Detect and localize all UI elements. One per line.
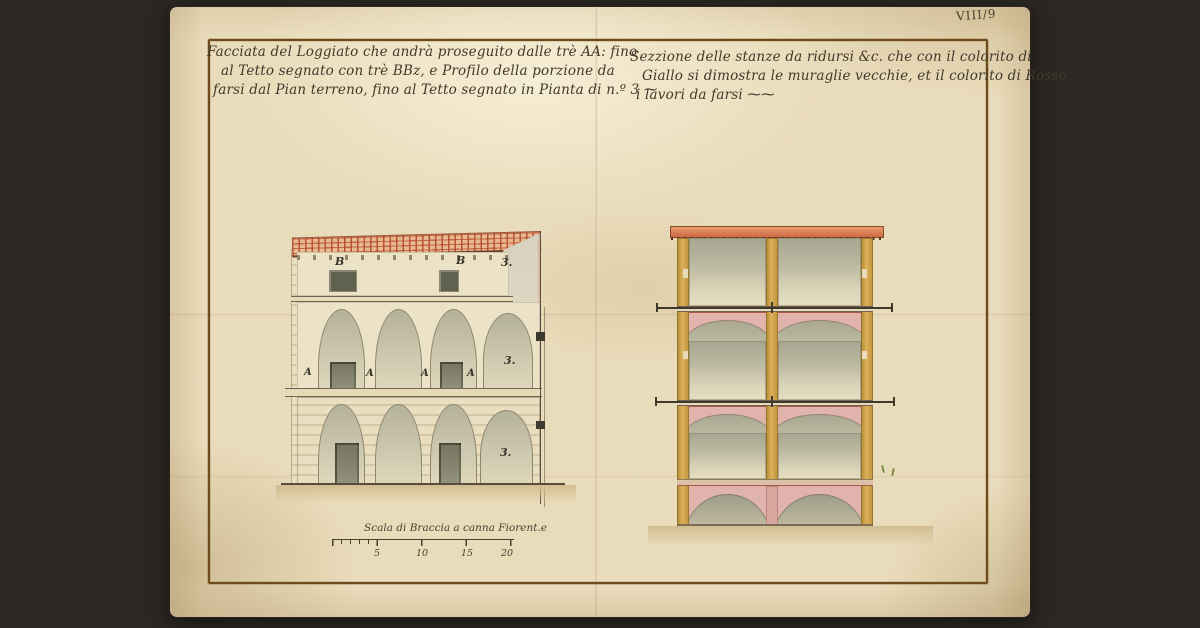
section-label-3: 3. — [500, 446, 511, 459]
tie-anchor — [536, 332, 545, 341]
left-title: Facciata del Loggiato che andrà prosegui… — [207, 43, 658, 100]
title-line: al Tetto segnato con trè BBz, e Profilo … — [207, 62, 658, 81]
scale-tick-label: 10 — [416, 548, 428, 559]
section-roof-slab — [670, 226, 884, 238]
title-line: farsi dal Pian terreno, fino al Tetto se… — [207, 81, 658, 100]
eave-corbels — [297, 255, 509, 260]
tie-rod — [655, 401, 895, 403]
arcade-label-a: A — [421, 368, 429, 379]
arcade-label-a: A — [467, 368, 475, 379]
cellar-vault — [689, 486, 766, 526]
room-cell — [689, 341, 766, 400]
room-cell — [778, 341, 861, 400]
section-label-3: 3. — [501, 256, 512, 269]
wall-step-notch — [683, 351, 688, 359]
ground-door-opening — [439, 443, 461, 484]
tie-rod-anchor — [893, 397, 895, 406]
floor-slab — [285, 388, 542, 397]
section-label-3: 3. — [504, 354, 515, 367]
photograph-background: VIII/9 Facciata del Loggiato che andrà p… — [0, 0, 1200, 628]
scale-tick-label: 15 — [461, 548, 473, 559]
parchment-sheet: VIII/9 Facciata del Loggiato che andrà p… — [170, 7, 1030, 617]
wall-step-notch — [862, 269, 867, 278]
cellar-center-pier — [766, 486, 778, 526]
vault-band — [689, 312, 766, 341]
title-line: Giallo si dimostra le muraglie vecchie, … — [630, 67, 1067, 86]
right-title: Sezzione delle stanze da ridursi &c. che… — [630, 48, 1067, 105]
floor-slab-pink — [677, 479, 873, 486]
arcade-label-a: A — [304, 367, 312, 378]
ground-door-opening — [335, 443, 359, 484]
ground-wash — [648, 526, 933, 546]
folio-number: VIII/9 — [956, 7, 997, 24]
room-cell — [689, 433, 766, 479]
room-cell — [778, 433, 861, 479]
attic-label-b: B — [456, 254, 465, 267]
cellar-vault — [778, 486, 861, 526]
attic-label-b: B — [335, 255, 344, 268]
arcade-label-a: A — [366, 368, 374, 379]
attic-window — [440, 271, 458, 291]
section-wall-line — [540, 231, 541, 504]
wall-step-notch — [683, 269, 688, 278]
room-cell — [689, 238, 766, 306]
tie-rod — [656, 307, 893, 309]
room-cell — [778, 238, 861, 306]
tie-anchor — [536, 421, 545, 429]
ground-wash — [276, 485, 576, 503]
vault-band — [778, 312, 861, 341]
tie-rod-anchor — [771, 396, 773, 407]
upper-door-opening — [330, 362, 356, 389]
scale-bar-ruler — [332, 539, 514, 546]
title-line: i lavori da farsi ⁓⁓ — [630, 86, 1067, 105]
tie-rod-anchor — [891, 303, 893, 312]
vault-band — [778, 406, 861, 433]
attic-wall — [297, 252, 509, 296]
scale-bar-title: Scala di Braccia a canna Fiorent.e — [364, 522, 547, 534]
title-line: Facciata del Loggiato che andrà prosegui… — [207, 43, 658, 62]
vault-band — [689, 406, 766, 433]
scale-tick-label: 20 — [501, 548, 513, 559]
tie-rod-anchor — [771, 302, 773, 313]
attic-window — [330, 271, 356, 291]
wall-step-notch — [862, 351, 867, 359]
tie-rod-anchor — [656, 303, 658, 312]
title-line: Sezzione delle stanze da ridursi &c. che… — [630, 48, 1067, 67]
scale-tick-label: 5 — [374, 548, 380, 559]
tie-rod-anchor — [655, 397, 657, 406]
upper-door-opening — [440, 362, 463, 389]
